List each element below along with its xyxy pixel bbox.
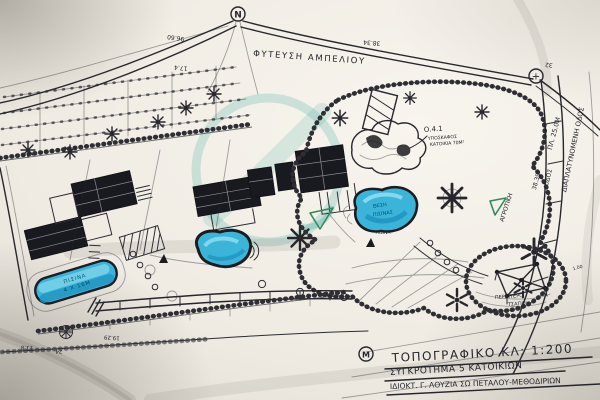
boundary-point-marker: +: [529, 69, 543, 83]
dim-bottom3: 19.29: [103, 333, 120, 340]
dim-top-right: 38.34: [363, 38, 381, 46]
title-block: ΤΟΠΟΓΡΑΦΙΚΟ ΚΛ: 1:200 ΣΥΓΚΡΟΤΗΜΑ 5 ΚΑΤΟΙ…: [385, 342, 600, 395]
title-marker-letter: M: [362, 351, 370, 360]
pool-right-caption: ΠΙΣΙΝΑ: [376, 230, 391, 236]
pergola-label-2: ΤΣΑΓΙΟΥ: [507, 300, 530, 308]
dim-right: 32: [545, 61, 553, 69]
road-word-label: ΟΔΟΣ: [543, 168, 554, 187]
road-width-label: ΠΛ. 25.0Μ: [546, 116, 562, 150]
site-plan-drawing: ΠΙΣΙΝΑ 4 Χ 16Μ ΘΕΣΗ ΠΙΣΙΝΑΣ ΠΙΣΙΝΑ: [0, 0, 600, 400]
underground-ref: Ο.4.1: [424, 125, 443, 134]
north-marker-letter: N: [234, 11, 242, 21]
boundary-point-glyph: +: [532, 72, 540, 83]
dim-top: 96.60: [167, 33, 185, 42]
pool-right: ΘΕΣΗ ΠΙΣΙΝΑΣ ΠΙΣΙΝΑ: [343, 187, 417, 236]
road-rural-label: ΑΓΡΟΤΙΚΗ: [499, 192, 515, 222]
title-marker: M: [359, 347, 373, 361]
dim-bottom1: 11.8: [20, 344, 33, 351]
photo-of-site-plan: ΠΙΣΙΝΑ 4 Χ 16Μ ΘΕΣΗ ΠΙΣΙΝΑΣ ΠΙΣΙΝΑ: [0, 0, 600, 400]
title-line-3: ΙΔΙΟΚΤ. Γ. ΛΟΥΖΙΑ ΣΩ ΠΕΤΑΛΟΥ-ΜΕΘΟΔΙΡΙΩΝ: [390, 376, 561, 391]
road-number-label: 38.39: [531, 172, 542, 191]
dim-top2: 17.4: [174, 63, 188, 71]
pergola-label-1: ΠΕΡΙΠΤΕΡΟ: [495, 293, 524, 301]
rock-outcrop: [352, 89, 427, 174]
north-marker: N: [231, 7, 245, 21]
dim-bottom2: 24: [55, 348, 63, 354]
boundary-lines-top: [0, 21, 600, 136]
